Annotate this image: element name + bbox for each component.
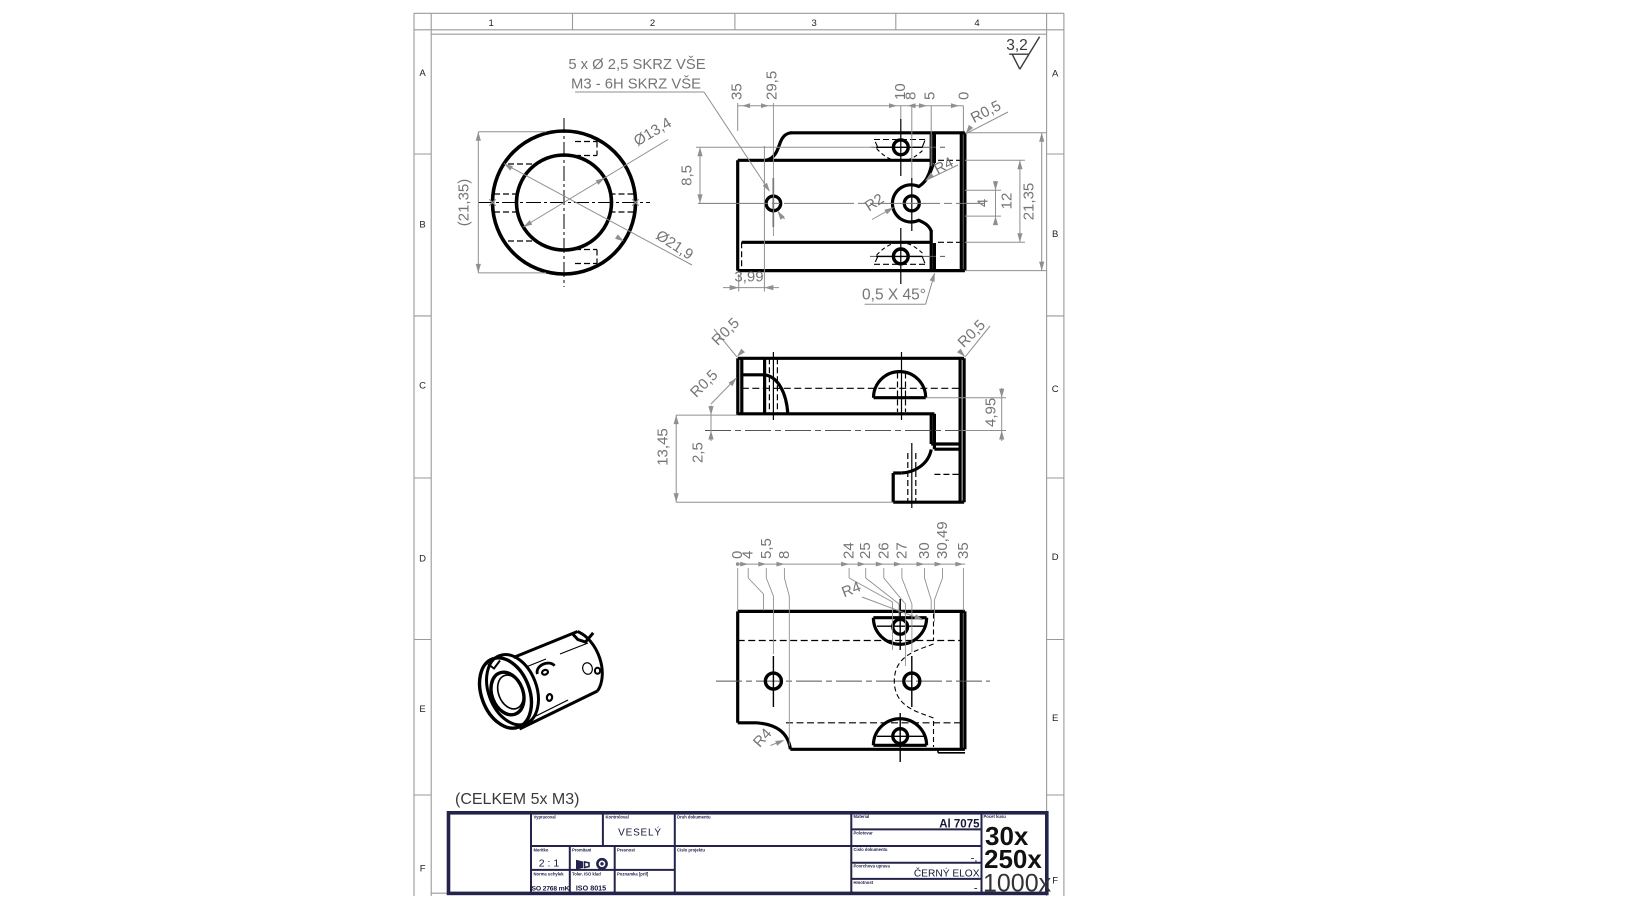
- svg-text:Povrchova uprava: Povrchova uprava: [854, 864, 891, 869]
- svg-text:ČERNÝ ELOX: ČERNÝ ELOX: [914, 867, 980, 880]
- svg-text:Al 7075: Al 7075: [939, 819, 980, 831]
- svg-text:Norma uchylek: Norma uchylek: [534, 872, 565, 877]
- svg-text:3,2: 3,2: [1006, 37, 1028, 54]
- svg-text:5 x Ø 2,5 SKRZ VŠE: 5 x Ø 2,5 SKRZ VŠE: [568, 56, 705, 73]
- svg-text:4: 4: [975, 199, 992, 207]
- svg-text:29,5: 29,5: [764, 71, 781, 100]
- svg-text:Presnost: Presnost: [617, 848, 636, 853]
- svg-text:Meritko: Meritko: [534, 848, 549, 853]
- svg-text:B: B: [1052, 229, 1058, 240]
- svg-text:Material: Material: [854, 814, 870, 819]
- svg-text:ISO 2768 mK: ISO 2768 mK: [530, 886, 570, 893]
- svg-text:27: 27: [893, 542, 910, 559]
- svg-text:8: 8: [776, 551, 793, 559]
- svg-text:5,5: 5,5: [758, 538, 775, 559]
- svg-text:Vypracoval: Vypracoval: [534, 815, 556, 820]
- svg-text:Toler. ISO klad: Toler. ISO klad: [572, 872, 601, 877]
- svg-text:F: F: [1052, 876, 1058, 887]
- svg-text:25: 25: [857, 542, 874, 559]
- svg-text:0: 0: [956, 92, 973, 100]
- svg-text:Poznamka [pril]: Poznamka [pril]: [617, 872, 649, 877]
- svg-text:F: F: [420, 864, 426, 875]
- svg-text:26: 26: [875, 542, 892, 559]
- svg-text:30: 30: [916, 542, 933, 559]
- svg-text:Cislo projektu: Cislo projektu: [677, 848, 705, 853]
- svg-text:A: A: [419, 68, 426, 79]
- svg-text:4: 4: [740, 551, 757, 559]
- svg-text:Polotovar: Polotovar: [854, 831, 874, 836]
- svg-text:C: C: [419, 381, 426, 392]
- svg-text:1: 1: [489, 18, 494, 29]
- svg-text:E: E: [419, 704, 425, 715]
- svg-text:Pocet kusu: Pocet kusu: [984, 814, 1007, 819]
- svg-text:0,5 X 45°: 0,5 X 45°: [862, 287, 926, 304]
- svg-text:VESELÝ: VESELÝ: [618, 826, 662, 839]
- svg-text:Hmotnost: Hmotnost: [854, 880, 874, 885]
- svg-text:21,35: 21,35: [1021, 183, 1038, 221]
- svg-text:3,99: 3,99: [734, 269, 763, 286]
- svg-text:2: 2: [650, 18, 655, 29]
- svg-text:Druh dokumentu: Druh dokumentu: [677, 815, 711, 820]
- svg-text:B: B: [419, 220, 425, 231]
- svg-text:-: -: [974, 883, 978, 895]
- svg-text:12: 12: [999, 193, 1016, 210]
- svg-text:ISO 8015: ISO 8015: [576, 884, 606, 893]
- svg-text:2,5: 2,5: [690, 442, 707, 463]
- svg-text:Promitani: Promitani: [572, 848, 591, 853]
- svg-text:(21,35): (21,35): [456, 179, 473, 227]
- svg-text:E: E: [1052, 713, 1058, 724]
- svg-text:1000x: 1000x: [983, 870, 1052, 897]
- svg-text:Kontroloval: Kontroloval: [606, 815, 629, 820]
- svg-text:8: 8: [903, 92, 920, 100]
- svg-text:Cislo dokumentu: Cislo dokumentu: [854, 847, 888, 852]
- svg-text:C: C: [1052, 384, 1059, 395]
- svg-text:A: A: [1052, 69, 1059, 80]
- svg-text:(CELKEM 5x M3): (CELKEM 5x M3): [455, 791, 579, 808]
- svg-text:4,95: 4,95: [983, 398, 1000, 427]
- svg-text:D: D: [419, 554, 426, 565]
- svg-text:-,: -,: [971, 853, 978, 865]
- svg-text:24: 24: [841, 542, 858, 559]
- svg-text:35: 35: [729, 83, 746, 100]
- svg-text:2 : 1: 2 : 1: [539, 858, 560, 870]
- svg-text:M3 - 6H SKRZ VŠE: M3 - 6H SKRZ VŠE: [571, 76, 701, 93]
- svg-text:8,5: 8,5: [679, 165, 696, 186]
- svg-text:30,49: 30,49: [934, 521, 951, 559]
- svg-text:D: D: [1052, 552, 1059, 563]
- svg-text:13,45: 13,45: [655, 428, 672, 466]
- svg-text:35: 35: [955, 542, 972, 559]
- svg-text:3: 3: [811, 18, 816, 29]
- svg-text:5: 5: [922, 92, 939, 100]
- svg-text:4: 4: [974, 18, 979, 29]
